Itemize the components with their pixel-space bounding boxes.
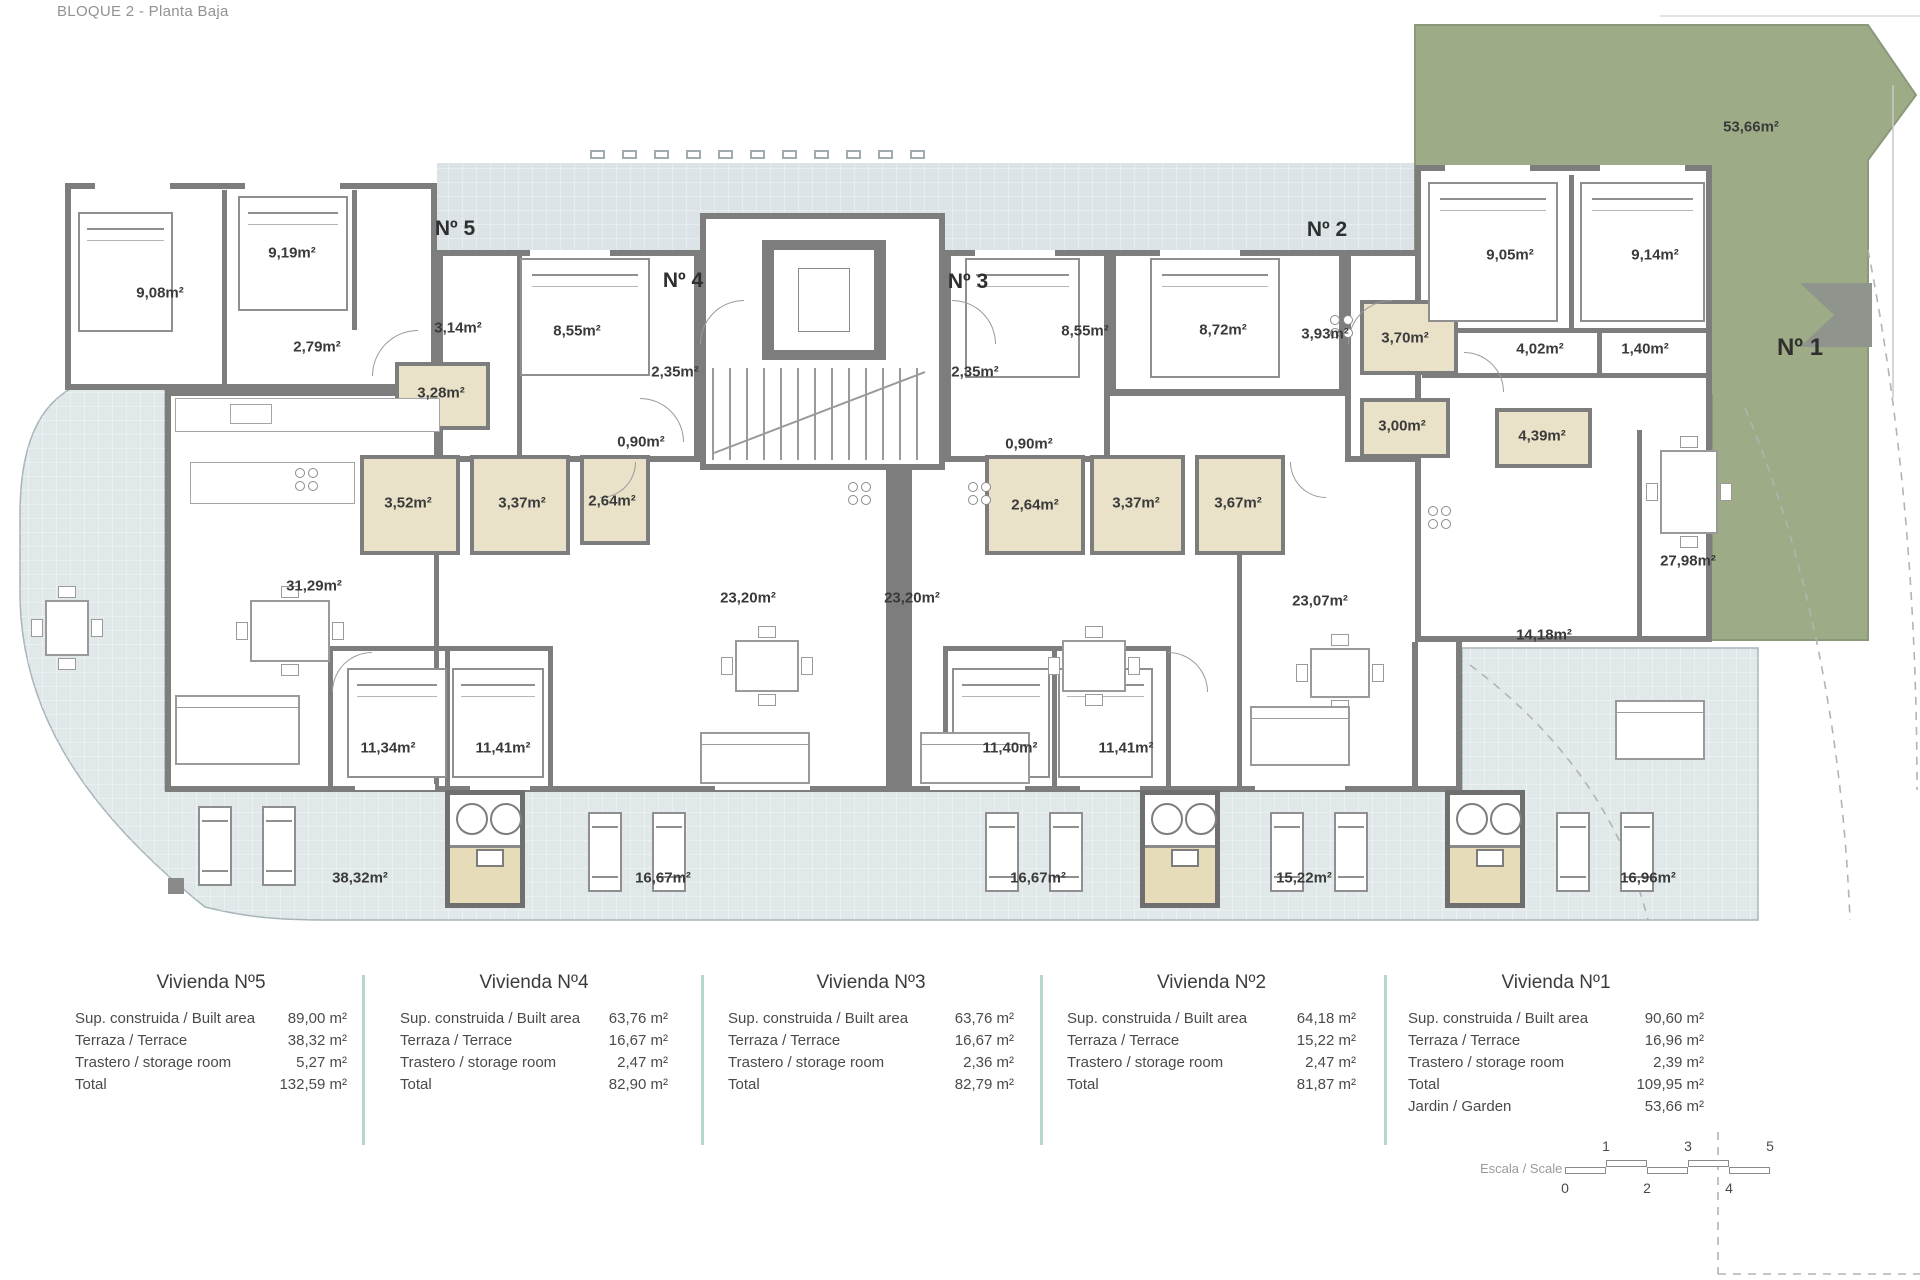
washer-icon <box>1151 803 1183 835</box>
stove-burner-icon <box>1343 315 1353 325</box>
garden-area-label: 53,66m² <box>1723 119 1779 136</box>
room-area-label: 2,79m² <box>293 339 341 356</box>
scale-segment <box>1729 1167 1770 1174</box>
row-label: Total <box>1067 1074 1099 1096</box>
chair <box>758 694 776 706</box>
vivienda-table-5: Vivienda Nº5Sup. construida / Built area… <box>75 972 347 1096</box>
interior-wall <box>943 646 1171 651</box>
room-area-label: 23,07m² <box>1292 593 1348 610</box>
vivienda-table-row: Jardin / Garden53,66 m² <box>1408 1096 1704 1118</box>
stove-burner-icon <box>1441 519 1451 529</box>
plan-title: BLOQUE 2 - Planta Baja <box>57 3 229 20</box>
terrace-area-label: 16,67m² <box>1010 870 1066 887</box>
row-value: 109,95 m² <box>1630 1074 1704 1096</box>
room-area-label: 9,05m² <box>1486 247 1534 264</box>
room-area-label: 9,08m² <box>136 285 184 302</box>
room-area-label: 8,55m² <box>1061 323 1109 340</box>
stove-burner-icon <box>861 495 871 505</box>
window <box>1445 165 1530 171</box>
window <box>1600 165 1685 171</box>
chair <box>58 586 76 598</box>
scale-segment <box>1688 1160 1729 1167</box>
row-value: 15,22 m² <box>1282 1030 1356 1052</box>
vivienda-table-1: Vivienda Nº1Sup. construida / Built area… <box>1408 972 1704 1118</box>
sofa <box>175 695 300 765</box>
chair <box>31 619 43 637</box>
interior-wall <box>1569 175 1574 330</box>
window <box>1080 784 1140 790</box>
chair <box>1680 536 1698 548</box>
window <box>95 183 170 189</box>
vivienda-table-row: Total109,95 m² <box>1408 1074 1704 1096</box>
laundry-top <box>1145 795 1215 848</box>
vivienda-table-row: Total82,79 m² <box>728 1074 1014 1096</box>
row-value: 82,79 m² <box>940 1074 1014 1096</box>
chair <box>236 622 248 640</box>
room-area-label: 2,64m² <box>1011 497 1059 514</box>
row-label: Trastero / storage room <box>75 1052 231 1074</box>
stove-burner-icon <box>1330 315 1340 325</box>
unit-number-label: Nº 4 <box>663 269 703 293</box>
row-value: 16,67 m² <box>940 1030 1014 1052</box>
window <box>245 183 340 189</box>
row-label: Terraza / Terrace <box>1067 1030 1179 1052</box>
stove-burner-icon <box>848 482 858 492</box>
sunbed <box>262 806 296 886</box>
window <box>930 784 1025 790</box>
walkway-tick <box>846 150 861 159</box>
walkway-tick <box>590 150 605 159</box>
room-area-label: 0,90m² <box>617 434 665 451</box>
vivienda-table-title: Vivienda Nº5 <box>75 972 347 994</box>
stove-burner-icon <box>861 482 871 492</box>
room-area-label: 9,19m² <box>268 245 316 262</box>
row-label: Trastero / storage room <box>400 1052 556 1074</box>
floor-plan-sheet: BLOQUE 2 - Planta Baja 9,08m²9,19m²2,79m… <box>0 0 1920 1280</box>
chair <box>801 657 813 675</box>
bed <box>78 212 173 332</box>
kitchen-sink <box>230 404 272 424</box>
row-value: 90,60 m² <box>1630 1008 1704 1030</box>
scale-tick-label: 0 <box>1561 1180 1569 1196</box>
stove-burner-icon <box>981 482 991 492</box>
chair <box>332 622 344 640</box>
chair <box>1331 634 1349 646</box>
row-value: 81,87 m² <box>1282 1074 1356 1096</box>
interior-wall <box>548 646 553 792</box>
room-area-label: 9,14m² <box>1631 247 1679 264</box>
laundry-top <box>1450 795 1520 848</box>
vivienda-table-row: Sup. construida / Built area90,60 m² <box>1408 1008 1704 1030</box>
vivienda-table-row: Sup. construida / Built area63,76 m² <box>728 1008 1014 1030</box>
interior-wall <box>1422 328 1706 333</box>
vivienda-table-row: Trastero / storage room2,47 m² <box>400 1052 668 1074</box>
room-area-label: 8,72m² <box>1199 322 1247 339</box>
dining-table <box>1062 640 1126 692</box>
room-area-label: 3,14m² <box>434 320 482 337</box>
window <box>715 784 810 790</box>
terrace-area-label: 16,67m² <box>635 870 691 887</box>
vivienda-table-row: Sup. construida / Built area64,18 m² <box>1067 1008 1356 1030</box>
chair <box>1085 694 1103 706</box>
room-area-label: 2,35m² <box>951 364 999 381</box>
room-area-label: 1,40m² <box>1621 341 1669 358</box>
washer-icon <box>456 803 488 835</box>
washer-icon <box>1490 803 1522 835</box>
dining-table <box>735 640 799 692</box>
walkway-tick <box>622 150 637 159</box>
row-value: 2,39 m² <box>1630 1052 1704 1074</box>
sink-icon <box>476 849 504 867</box>
room-area-label: 3,93m² <box>1301 326 1349 343</box>
walkway-tick <box>750 150 765 159</box>
scale-tick-label: 2 <box>1643 1180 1651 1196</box>
row-label: Sup. construida / Built area <box>1408 1008 1588 1030</box>
chair <box>758 626 776 638</box>
terrace-area-label: 15,22m² <box>1276 870 1332 887</box>
vivienda-table-title: Vivienda Nº1 <box>1408 972 1704 994</box>
row-value: 53,66 m² <box>1630 1096 1704 1118</box>
row-value: 63,76 m² <box>594 1008 668 1030</box>
row-label: Total <box>400 1074 432 1096</box>
walkway-tick <box>878 150 893 159</box>
row-value: 64,18 m² <box>1282 1008 1356 1030</box>
unit-number-label: Nº 3 <box>948 270 988 294</box>
stove-burner-icon <box>308 468 318 478</box>
unit-number-label: Nº 5 <box>435 217 475 241</box>
vivienda-table-title: Vivienda Nº4 <box>400 972 668 994</box>
chair <box>91 619 103 637</box>
walkway-tick <box>686 150 701 159</box>
dining-table <box>1310 648 1370 698</box>
room-area-label: 11,34m² <box>360 740 415 757</box>
stove-burner-icon <box>295 468 305 478</box>
vivienda-table-row: Terraza / Terrace38,32 m² <box>75 1030 347 1052</box>
scale-tick-label: 3 <box>1684 1138 1692 1154</box>
washer-icon <box>490 803 522 835</box>
row-value: 5,27 m² <box>273 1052 347 1074</box>
window <box>355 784 435 790</box>
planter-square <box>168 878 184 894</box>
sunbed <box>1556 812 1590 892</box>
row-label: Sup. construida / Built area <box>75 1008 255 1030</box>
kitchen-counter <box>175 398 440 432</box>
room-area-label: 3,52m² <box>384 495 432 512</box>
row-label: Total <box>1408 1074 1440 1096</box>
table-separator <box>362 975 365 1145</box>
vivienda-table-row: Total82,90 m² <box>400 1074 668 1096</box>
vivienda-table-row: Terraza / Terrace16,67 m² <box>400 1030 668 1052</box>
interior-wall <box>1412 642 1418 790</box>
row-label: Total <box>728 1074 760 1096</box>
row-label: Terraza / Terrace <box>728 1030 840 1052</box>
row-value: 38,32 m² <box>273 1030 347 1052</box>
walkway-tick <box>910 150 925 159</box>
scale-tick-label: 5 <box>1766 1138 1774 1154</box>
washer-icon <box>1456 803 1488 835</box>
row-label: Total <box>75 1074 107 1096</box>
row-label: Terraza / Terrace <box>75 1030 187 1052</box>
sofa <box>1615 700 1705 760</box>
row-label: Trastero / storage room <box>728 1052 884 1074</box>
chair <box>1085 626 1103 638</box>
storage-room <box>445 790 525 908</box>
interior-wall <box>328 646 553 651</box>
window <box>1255 784 1345 790</box>
room-area-label: 3,00m² <box>1378 418 1426 435</box>
row-value: 132,59 m² <box>273 1074 347 1096</box>
elevator-shaft <box>762 240 886 360</box>
stove-burner-icon <box>848 495 858 505</box>
stove-burner-icon <box>1428 519 1438 529</box>
bed <box>1150 258 1280 378</box>
room-area-label: 14,18m² <box>1516 627 1572 644</box>
vivienda-table-row: Total81,87 m² <box>1067 1074 1356 1096</box>
vivienda-table-2: Vivienda Nº2Sup. construida / Built area… <box>1067 972 1356 1096</box>
room-area-label: 2,35m² <box>651 364 699 381</box>
dining-table <box>45 600 89 656</box>
interior-wall <box>1637 430 1642 642</box>
room-area-label: 0,90m² <box>1005 436 1053 453</box>
stove-burner-icon <box>295 481 305 491</box>
room-area-label: 4,02m² <box>1516 341 1564 358</box>
row-label: Trastero / storage room <box>1067 1052 1223 1074</box>
room-area-label: 8,55m² <box>553 323 601 340</box>
sunbed <box>588 812 622 892</box>
room-area-label: 4,39m² <box>1518 428 1566 445</box>
bed <box>452 668 544 778</box>
scale-segment <box>1647 1167 1688 1174</box>
stove-burner-icon <box>981 495 991 505</box>
window <box>530 250 610 256</box>
room-area-label: 3,37m² <box>1112 495 1160 512</box>
vivienda-table-row: Trastero / storage room5,27 m² <box>75 1052 347 1074</box>
room-area-label: 2,64m² <box>588 493 636 510</box>
room-area-label: 11,40m² <box>982 740 1037 757</box>
stove-burner-icon <box>1441 506 1451 516</box>
row-label: Sup. construida / Built area <box>400 1008 580 1030</box>
row-value: 16,67 m² <box>594 1030 668 1052</box>
window <box>975 250 1055 256</box>
room-area-label: 11,41m² <box>1098 740 1153 757</box>
chair <box>721 657 733 675</box>
sofa <box>700 732 810 784</box>
sofa <box>1250 706 1350 766</box>
terrace-area-label: 16,96m² <box>1620 870 1676 887</box>
interior-wall <box>1597 330 1602 375</box>
room-area-label: 31,29m² <box>286 578 342 595</box>
walkway-tick <box>718 150 733 159</box>
chair <box>1720 483 1732 501</box>
stove-burner-icon <box>308 481 318 491</box>
scale-tick-label: 4 <box>1725 1180 1733 1196</box>
walkway-tick <box>782 150 797 159</box>
row-value: 2,47 m² <box>1282 1052 1356 1074</box>
room-area-label: 3,37m² <box>498 495 546 512</box>
vivienda-table-3: Vivienda Nº3Sup. construida / Built area… <box>728 972 1014 1096</box>
vivienda-table-row: Trastero / storage room2,47 m² <box>1067 1052 1356 1074</box>
room-area-label: 23,20m² <box>884 590 940 607</box>
scale-tick-label: 1 <box>1602 1138 1610 1154</box>
vivienda-table-row: Trastero / storage room2,36 m² <box>728 1052 1014 1074</box>
bed <box>520 258 650 376</box>
vivienda-table-title: Vivienda Nº2 <box>1067 972 1356 994</box>
scale-segment <box>1606 1160 1647 1167</box>
scale-label: Escala / Scale <box>1480 1161 1562 1176</box>
row-value: 89,00 m² <box>273 1008 347 1030</box>
row-value: 2,47 m² <box>594 1052 668 1074</box>
room-area-label: 3,28m² <box>417 385 465 402</box>
room-area-label: 3,67m² <box>1214 495 1262 512</box>
dining-table <box>1660 450 1718 534</box>
chair <box>1680 436 1698 448</box>
stove-burner-icon <box>968 495 978 505</box>
row-value: 82,90 m² <box>594 1074 668 1096</box>
sunbed <box>198 806 232 886</box>
interior-wall <box>222 190 227 385</box>
dining-table <box>250 600 330 662</box>
laundry-top <box>450 795 520 848</box>
window <box>1160 250 1240 256</box>
interior-wall <box>352 190 357 330</box>
row-label: Terraza / Terrace <box>1408 1030 1520 1052</box>
chair <box>281 664 299 676</box>
scale-segment <box>1565 1167 1606 1174</box>
vivienda-table-4: Vivienda Nº4Sup. construida / Built area… <box>400 972 668 1096</box>
vivienda-table-row: Trastero / storage room2,39 m² <box>1408 1052 1704 1074</box>
elevator-cab <box>774 250 874 350</box>
row-label: Trastero / storage room <box>1408 1052 1564 1074</box>
table-separator <box>1384 975 1387 1145</box>
washer-icon <box>1185 803 1217 835</box>
row-value: 63,76 m² <box>940 1008 1014 1030</box>
unit-number-label: Nº 2 <box>1307 218 1347 242</box>
stove-burner-icon <box>968 482 978 492</box>
row-label: Sup. construida / Built area <box>1067 1008 1247 1030</box>
kitchen-island <box>190 462 355 504</box>
stove-burner-icon <box>1428 506 1438 516</box>
sunbed <box>1334 812 1368 892</box>
storage-room <box>1140 790 1220 908</box>
chair <box>1128 657 1140 675</box>
terrace-area-label: 38,32m² <box>332 870 388 887</box>
vivienda-table-title: Vivienda Nº3 <box>728 972 1014 994</box>
unit-number-label: Nº 1 <box>1777 334 1823 362</box>
room-area-label: 23,20m² <box>720 590 776 607</box>
vivienda-table-row: Total132,59 m² <box>75 1074 347 1096</box>
chair <box>1296 664 1308 682</box>
vivienda-table-row: Terraza / Terrace16,96 m² <box>1408 1030 1704 1052</box>
chair <box>1372 664 1384 682</box>
vivienda-table-row: Sup. construida / Built area63,76 m² <box>400 1008 668 1030</box>
row-label: Jardin / Garden <box>1408 1096 1511 1118</box>
vivienda-table-row: Sup. construida / Built area89,00 m² <box>75 1008 347 1030</box>
sink-icon <box>1476 849 1504 867</box>
vivienda-table-row: Terraza / Terrace15,22 m² <box>1067 1030 1356 1052</box>
vivienda-table-row: Terraza / Terrace16,67 m² <box>728 1030 1014 1052</box>
chair <box>58 658 76 670</box>
room-area-label: 11,41m² <box>475 740 530 757</box>
interior-wall <box>886 470 912 792</box>
row-label: Sup. construida / Built area <box>728 1008 908 1030</box>
chair <box>1048 657 1060 675</box>
room-area-label: 27,98m² <box>1660 553 1716 570</box>
row-value: 16,96 m² <box>1630 1030 1704 1052</box>
storage-room <box>1445 790 1525 908</box>
sink-icon <box>1171 849 1199 867</box>
walkway-tick <box>654 150 669 159</box>
chair <box>1646 483 1658 501</box>
interior-wall <box>328 646 333 792</box>
walkway-tick <box>814 150 829 159</box>
room-area-label: 3,70m² <box>1381 330 1429 347</box>
row-label: Terraza / Terrace <box>400 1030 512 1052</box>
table-separator <box>701 975 704 1145</box>
row-value: 2,36 m² <box>940 1052 1014 1074</box>
table-separator <box>1040 975 1043 1145</box>
